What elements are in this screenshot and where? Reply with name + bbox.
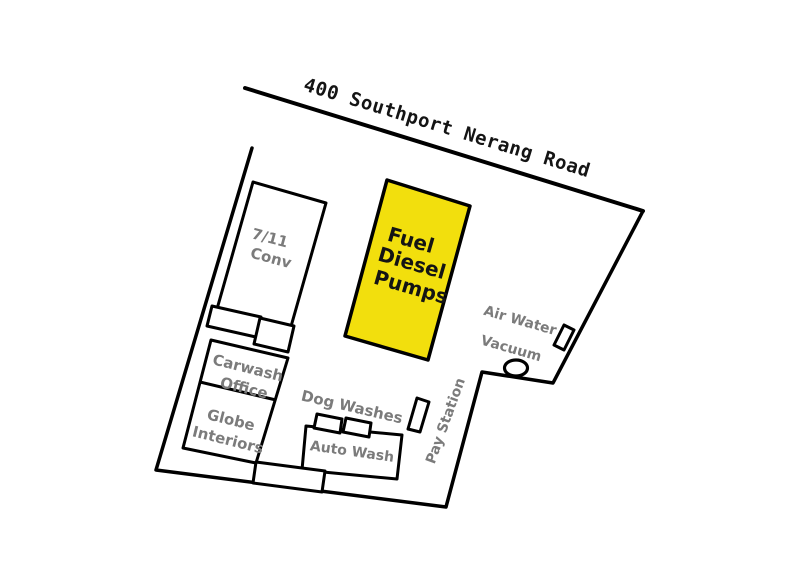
vacuum-circle	[505, 360, 528, 376]
road-line	[245, 88, 643, 211]
dog-wash-bay-2	[343, 418, 371, 437]
road-label: 400 Southport Nerang Road	[301, 74, 593, 182]
label-air-water: Air Water	[482, 303, 558, 339]
dog-wash-bay-1	[314, 414, 342, 433]
annex-rect-2	[254, 318, 294, 352]
site-map-page: 400 Southport Nerang Road	[0, 0, 812, 573]
road-group: 400 Southport Nerang Road	[245, 74, 643, 211]
site-map: 400 Southport Nerang Road	[0, 0, 812, 573]
pay-station-kiosk	[408, 398, 429, 432]
